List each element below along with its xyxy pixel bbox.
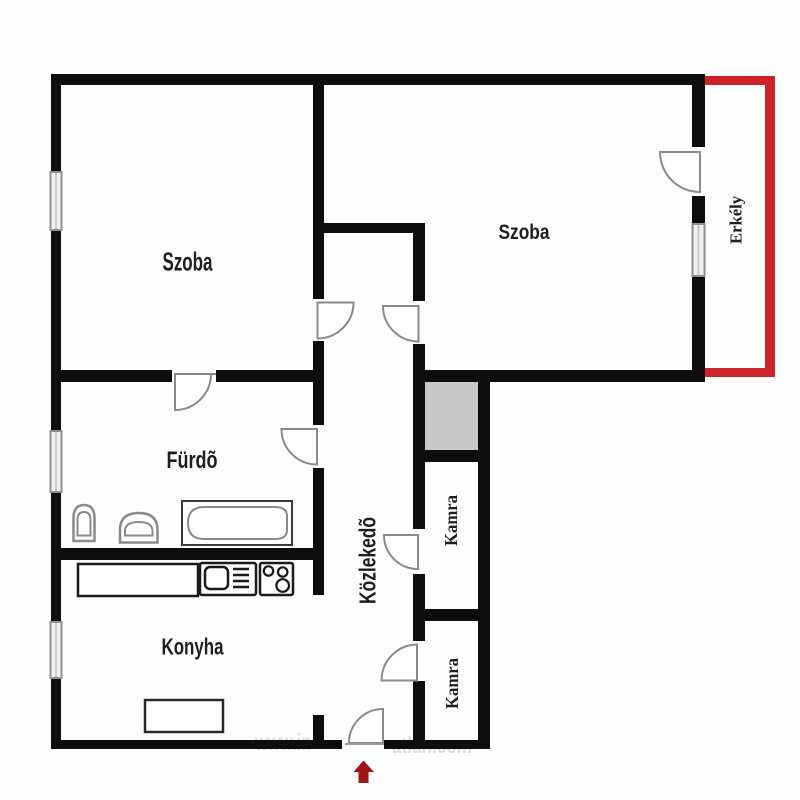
svg-text:Kamra: Kamra xyxy=(442,658,462,709)
svg-text:Fürdõ: Fürdõ xyxy=(167,447,218,474)
svg-text:Erkély: Erkély xyxy=(727,196,746,244)
svg-text:Konyha: Konyha xyxy=(162,634,224,660)
svg-text:Szoba: Szoba xyxy=(499,221,550,244)
svg-text:Közlekedõ: Közlekedõ xyxy=(355,517,381,604)
svg-text:Kamra: Kamra xyxy=(441,495,461,546)
svg-text:Szoba: Szoba xyxy=(163,247,213,277)
